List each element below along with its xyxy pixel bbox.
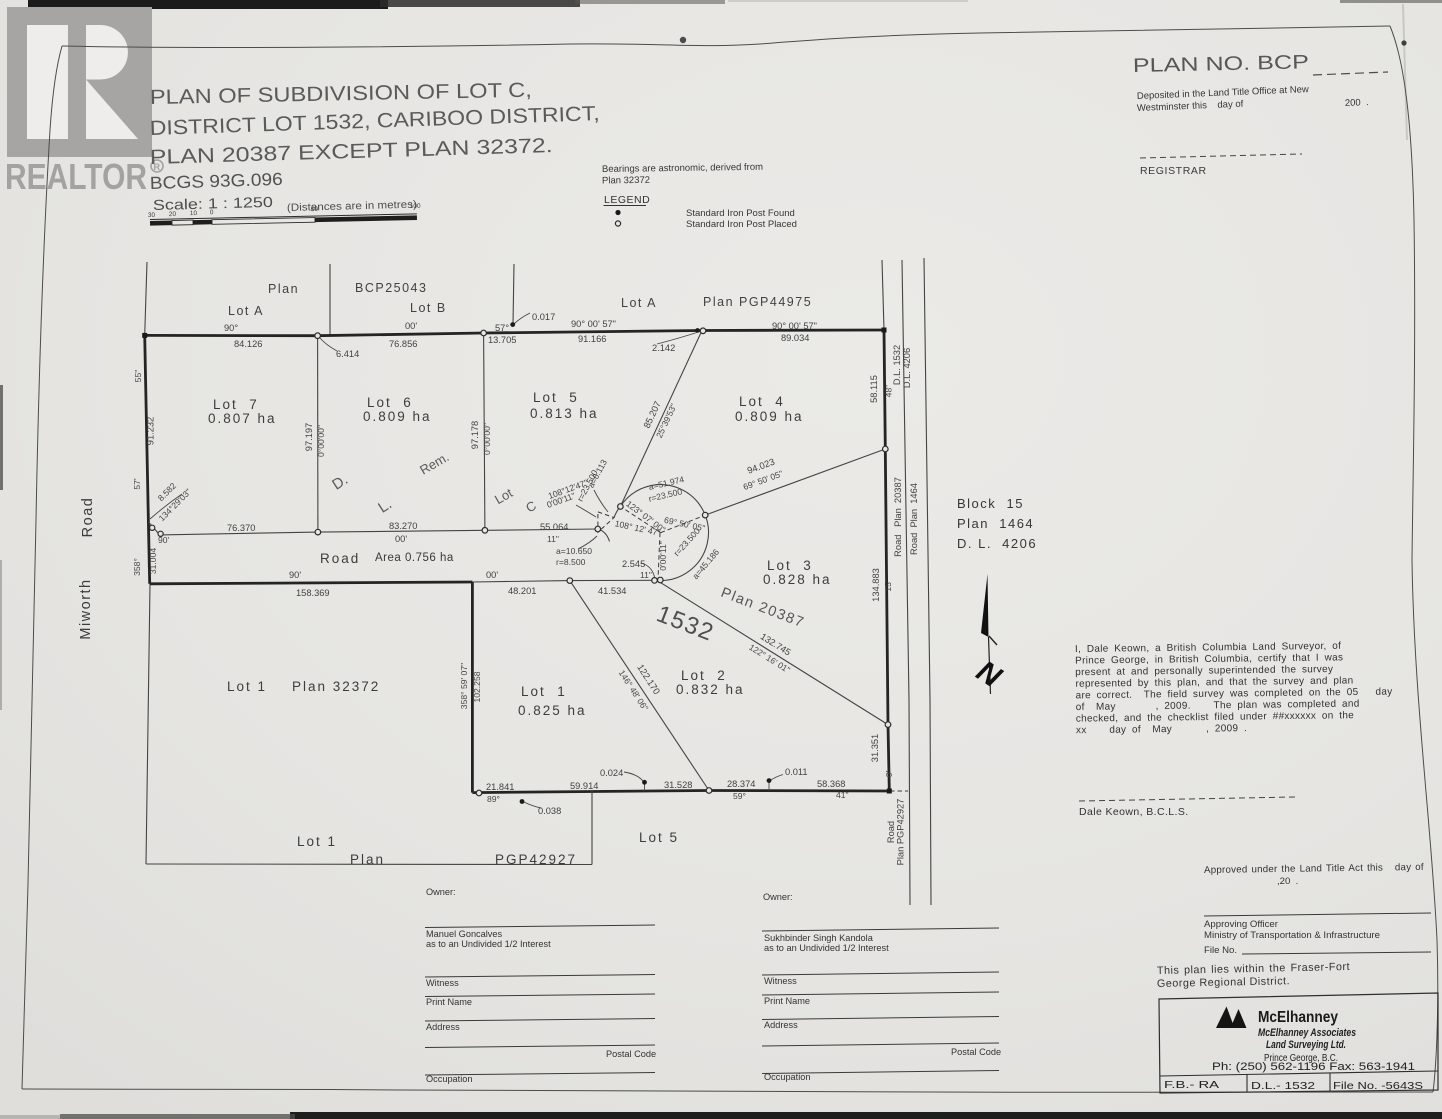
svg-text:358°: 358°	[132, 558, 142, 576]
svg-text:31.351: 31.351	[870, 734, 880, 762]
svg-text:a=10.650: a=10.650	[556, 546, 592, 556]
svg-text:Address: Address	[764, 1020, 798, 1030]
svg-text:Lot 3: Lot 3	[767, 558, 813, 573]
svg-text:90°: 90°	[224, 323, 238, 333]
svg-text:83.270: 83.270	[389, 521, 417, 531]
svg-text:Lot 7: Lot 7	[213, 397, 259, 412]
svg-text:Standard Iron Post Found: Standard Iron Post Found	[686, 208, 795, 219]
svg-text:59°: 59°	[733, 791, 746, 801]
svg-text:10: 10	[190, 210, 198, 217]
svg-text:102.258: 102.258	[472, 671, 482, 702]
svg-text:BCGS 93G.096: BCGS 93G.096	[149, 169, 283, 193]
svg-text:Dale Keown, B.C.L.S.: Dale Keown, B.C.L.S.	[1079, 806, 1189, 818]
svg-text:Road Plan 1464: Road Plan 1464	[909, 483, 919, 555]
svg-text:Lot 1: Lot 1	[521, 684, 567, 699]
svg-text:PGP42927: PGP42927	[495, 852, 577, 867]
svg-text:Witness: Witness	[764, 976, 797, 986]
svg-text:Plan: Plan	[350, 852, 385, 867]
svg-text:30: 30	[148, 212, 156, 219]
svg-text:91.232: 91.232	[146, 417, 156, 445]
svg-text:97.178: 97.178	[470, 421, 480, 449]
svg-text:2.545: 2.545	[622, 559, 645, 569]
svg-text:0.825 ha: 0.825 ha	[518, 703, 587, 718]
svg-text:90° 00' 57": 90° 00' 57"	[772, 321, 817, 331]
svg-text:Lot 5: Lot 5	[533, 390, 579, 405]
svg-text:28.374: 28.374	[727, 779, 755, 789]
svg-text:55.064: 55.064	[540, 522, 568, 532]
svg-text:11": 11"	[547, 534, 559, 544]
svg-text:,20 .: ,20 .	[1277, 876, 1298, 887]
svg-text:0.011: 0.011	[785, 767, 808, 777]
svg-text:Print Name: Print Name	[426, 997, 472, 1007]
svg-text:Lot A: Lot A	[228, 304, 264, 318]
svg-text:00': 00'	[486, 570, 498, 580]
svg-text:Bearings are astronomic, deriv: Bearings are astronomic, derived from	[602, 162, 763, 175]
svg-text:Block 15: Block 15	[957, 496, 1024, 511]
svg-text:13.705: 13.705	[488, 335, 516, 345]
svg-text:Plan: Plan	[268, 282, 299, 296]
svg-text:Ministry of Transportation & I: Ministry of Transportation & Infrastruct…	[1204, 930, 1380, 941]
svg-text:0.017: 0.017	[532, 312, 555, 322]
svg-text:11": 11"	[640, 570, 652, 580]
svg-text:REALTOR: REALTOR	[5, 156, 147, 197]
svg-text:0.809 ha: 0.809 ha	[363, 409, 432, 424]
svg-text:58.115: 58.115	[869, 375, 879, 403]
svg-text:Road: Road	[320, 551, 360, 566]
svg-text:Lot B: Lot B	[410, 301, 447, 315]
svg-text:0°00'00": 0°00'00"	[316, 425, 326, 457]
svg-text:Occupation: Occupation	[764, 1072, 810, 1082]
svg-text:89°: 89°	[487, 794, 500, 804]
svg-text:Lot 4: Lot 4	[739, 394, 785, 409]
svg-text:LEGEND: LEGEND	[604, 194, 650, 206]
svg-text:84.126: 84.126	[234, 339, 262, 349]
svg-text:76.370: 76.370	[227, 523, 255, 533]
svg-text:0': 0'	[884, 770, 894, 777]
svg-text:90': 90'	[289, 570, 301, 580]
svg-text:Plan 32372: Plan 32372	[602, 175, 650, 187]
svg-text:0.813 ha: 0.813 ha	[530, 406, 599, 421]
svg-text:0'00'11": 0'00'11"	[658, 541, 668, 571]
svg-text:Approving Officer: Approving Officer	[1204, 919, 1279, 930]
svg-text:Ph: (250) 562-1196 Fax: 563-19: Ph: (250) 562-1196 Fax: 563-1941	[1212, 1061, 1415, 1073]
svg-text:Plan PGP42927: Plan PGP42927	[896, 799, 906, 866]
svg-text:31.528: 31.528	[664, 780, 692, 790]
svg-text:Plan 1464: Plan 1464	[957, 516, 1034, 531]
svg-text:0°00'00": 0°00'00"	[482, 423, 492, 455]
svg-text:Road: Road	[80, 497, 96, 538]
svg-text:Manuel Goncalves: Manuel Goncalves	[426, 929, 502, 939]
svg-text:File No.: File No.	[1204, 945, 1237, 956]
svg-text:0.809 ha: 0.809 ha	[735, 409, 804, 424]
svg-text:58.368: 58.368	[817, 779, 845, 789]
svg-text:Lot 2: Lot 2	[681, 668, 727, 683]
svg-text:Occupation: Occupation	[426, 1074, 472, 1084]
svg-text:55": 55"	[133, 370, 143, 383]
svg-text:D.L.- 1532: D.L.- 1532	[1251, 1080, 1315, 1092]
svg-text:0.828 ha: 0.828 ha	[763, 572, 832, 587]
svg-text:6.414: 6.414	[336, 349, 359, 359]
svg-text:McElhanney: McElhanney	[1258, 1009, 1338, 1026]
svg-text:Road: Road	[886, 821, 896, 843]
svg-text:41": 41"	[836, 790, 849, 800]
svg-text:D. L. 4206: D. L. 4206	[957, 536, 1037, 551]
svg-text:Owner:: Owner:	[763, 892, 793, 902]
svg-text:REGISTRAR: REGISTRAR	[1140, 165, 1207, 177]
svg-text:Lot 1: Lot 1	[297, 834, 337, 849]
svg-text:100: 100	[410, 203, 421, 210]
svg-text:20: 20	[169, 211, 177, 218]
svg-text:00': 00'	[405, 321, 417, 331]
svg-text:200 .: 200 .	[1345, 97, 1369, 109]
svg-text:0.807 ha: 0.807 ha	[208, 411, 277, 426]
svg-text:as to an Undivided 1/2 Interes: as to an Undivided 1/2 Interest	[764, 943, 889, 953]
svg-text:D.L. 4206: D.L. 4206	[902, 348, 912, 388]
svg-text:97.197: 97.197	[304, 423, 314, 451]
svg-text:as to an Undivided 1/2 Interes: as to an Undivided 1/2 Interest	[426, 939, 551, 949]
svg-text:59.914: 59.914	[570, 781, 598, 791]
svg-text:48": 48"	[884, 385, 894, 398]
svg-text:PLAN NO. BCP: PLAN NO. BCP	[1133, 51, 1309, 77]
svg-text:Standard Iron Post Placed: Standard Iron Post Placed	[686, 219, 797, 230]
svg-text:Land Surveying Ltd.: Land Surveying Ltd.	[1266, 1039, 1346, 1051]
svg-text:Lot A: Lot A	[621, 296, 657, 310]
svg-text:0: 0	[210, 209, 214, 216]
svg-text:15': 15'	[883, 580, 893, 592]
svg-text:48.201: 48.201	[508, 586, 536, 596]
svg-text:57': 57'	[132, 478, 142, 490]
svg-text:158.369: 158.369	[296, 588, 330, 598]
svg-text:Lot 6: Lot 6	[367, 395, 413, 410]
svg-text:F.B.- RA: F.B.- RA	[1164, 1079, 1219, 1091]
svg-text:Road Plan 20387: Road Plan 20387	[893, 477, 903, 557]
svg-text:r=8.500: r=8.500	[556, 557, 586, 567]
svg-text:21.841: 21.841	[486, 782, 514, 792]
svg-text:Owner:: Owner:	[426, 887, 456, 897]
svg-text:File No. -5643S: File No. -5643S	[1333, 1080, 1423, 1092]
svg-text:Lot 1: Lot 1	[227, 679, 267, 694]
svg-text:Postal Code: Postal Code	[606, 1049, 656, 1059]
svg-text:Address: Address	[426, 1022, 460, 1032]
svg-text:90° 00' 57": 90° 00' 57"	[571, 319, 616, 329]
svg-text:Print Name: Print Name	[764, 996, 810, 1006]
svg-text:57°: 57°	[495, 323, 509, 333]
svg-text:Miworth: Miworth	[78, 578, 94, 639]
svg-text:134.883: 134.883	[871, 568, 881, 602]
svg-text:358° 59' 07": 358° 59' 07"	[459, 663, 469, 709]
svg-text:91.166: 91.166	[578, 334, 606, 344]
svg-text:Sukhbinder Singh Kandola: Sukhbinder Singh Kandola	[764, 933, 874, 943]
svg-text:0.832 ha: 0.832 ha	[676, 682, 745, 697]
svg-text:Lot 5: Lot 5	[639, 830, 679, 845]
svg-text:BCP25043: BCP25043	[355, 281, 427, 295]
svg-text:McElhanney Associates: McElhanney Associates	[1258, 1027, 1356, 1039]
svg-text:Postal Code: Postal Code	[951, 1047, 1001, 1057]
svg-text:Plan PGP44975: Plan PGP44975	[703, 295, 812, 309]
svg-text:D.L. 1532: D.L. 1532	[892, 345, 902, 385]
svg-text:31.004: 31.004	[148, 548, 158, 575]
svg-text:0.038: 0.038	[538, 806, 561, 816]
svg-text:41.534: 41.534	[598, 586, 626, 596]
svg-text:00': 00'	[395, 534, 407, 544]
svg-text:89.034: 89.034	[781, 333, 809, 343]
svg-text:90': 90'	[158, 535, 170, 545]
svg-text:xx day of May , 2009: xx day of May , 2009 .	[1076, 723, 1247, 736]
svg-text:76.856: 76.856	[389, 339, 417, 349]
svg-text:Witness: Witness	[426, 978, 459, 988]
svg-text:Plan 32372: Plan 32372	[292, 679, 380, 694]
svg-text:Area 0.756 ha: Area 0.756 ha	[375, 552, 454, 564]
svg-text:2.142: 2.142	[652, 343, 675, 353]
svg-text:0.024: 0.024	[600, 768, 623, 778]
svg-text:50: 50	[311, 206, 319, 213]
